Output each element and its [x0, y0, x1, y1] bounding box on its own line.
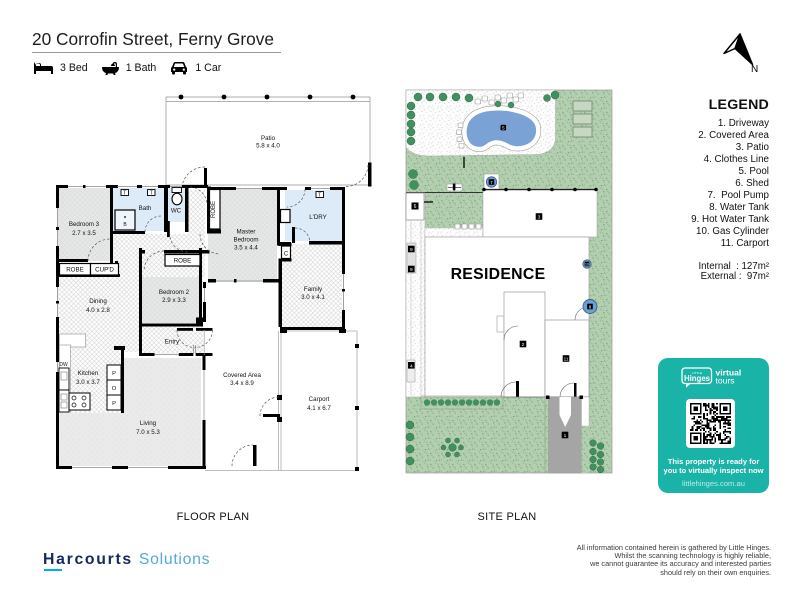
svg-text:3.4 x 8.9: 3.4 x 8.9 — [230, 380, 254, 387]
svg-text:Kitchen: Kitchen — [78, 370, 99, 377]
svg-text:4.1 x 6.7: 4.1 x 6.7 — [307, 405, 331, 412]
svg-text:Dining: Dining — [89, 298, 107, 305]
svg-text:9: 9 — [410, 267, 413, 273]
svg-text:Covered Area: Covered Area — [223, 372, 261, 379]
svg-text:4.0 x 2.8: 4.0 x 2.8 — [86, 307, 110, 314]
svg-text:Carport: Carport — [309, 396, 330, 403]
svg-text:P: P — [112, 371, 116, 377]
svg-text:N: N — [751, 64, 758, 75]
svg-text:ROBE: ROBE — [66, 267, 84, 274]
svg-text:C: C — [284, 252, 289, 258]
svg-text:Entry: Entry — [165, 339, 180, 346]
svg-text:4: 4 — [410, 363, 413, 369]
svg-text:3.0 x 4.1: 3.0 x 4.1 — [301, 294, 325, 301]
svg-text:9: 9 — [410, 247, 413, 253]
svg-text:WC: WC — [171, 208, 182, 215]
svg-text:ROBE: ROBE — [211, 201, 217, 218]
svg-text:11: 11 — [564, 357, 569, 362]
svg-text:2.9 x 3.3: 2.9 x 3.3 — [162, 297, 186, 304]
svg-text:Master: Master — [237, 229, 256, 236]
svg-text:L'DRY: L'DRY — [309, 214, 327, 221]
svg-text:3.5 x 4.4: 3.5 x 4.4 — [234, 245, 258, 252]
svg-text:3.0 x 3.7: 3.0 x 3.7 — [76, 379, 100, 386]
svg-text:Patio: Patio — [261, 135, 276, 142]
svg-text:Bedroom 2: Bedroom 2 — [159, 289, 190, 296]
svg-text:ROBE: ROBE — [174, 258, 192, 265]
svg-text:3: 3 — [538, 215, 541, 221]
svg-text:tours: tours — [716, 376, 735, 386]
svg-text:5.8 x 4.0: 5.8 x 4.0 — [256, 143, 280, 150]
svg-text:Family: Family — [304, 286, 323, 293]
svg-text:2: 2 — [522, 342, 525, 348]
svg-text:Bath: Bath — [139, 205, 152, 212]
svg-text:10: 10 — [585, 263, 589, 267]
svg-text:RESIDENCE: RESIDENCE — [451, 266, 546, 283]
svg-text:6: 6 — [414, 204, 417, 210]
svg-text:7.0 x 5.3: 7.0 x 5.3 — [136, 429, 160, 436]
svg-text:Bedroom: Bedroom — [233, 237, 258, 244]
svg-text:Living: Living — [140, 420, 157, 427]
svg-text:CUP'D: CUP'D — [95, 267, 114, 274]
svg-text:1: 1 — [564, 433, 567, 439]
svg-text:2.7 x 3.5: 2.7 x 3.5 — [72, 230, 96, 237]
svg-text:DW: DW — [59, 362, 68, 368]
svg-text:Hinges: Hinges — [684, 374, 711, 383]
svg-text:P: P — [112, 401, 116, 407]
svg-text:Bedroom 3: Bedroom 3 — [69, 221, 100, 228]
svg-text:O: O — [112, 386, 117, 392]
